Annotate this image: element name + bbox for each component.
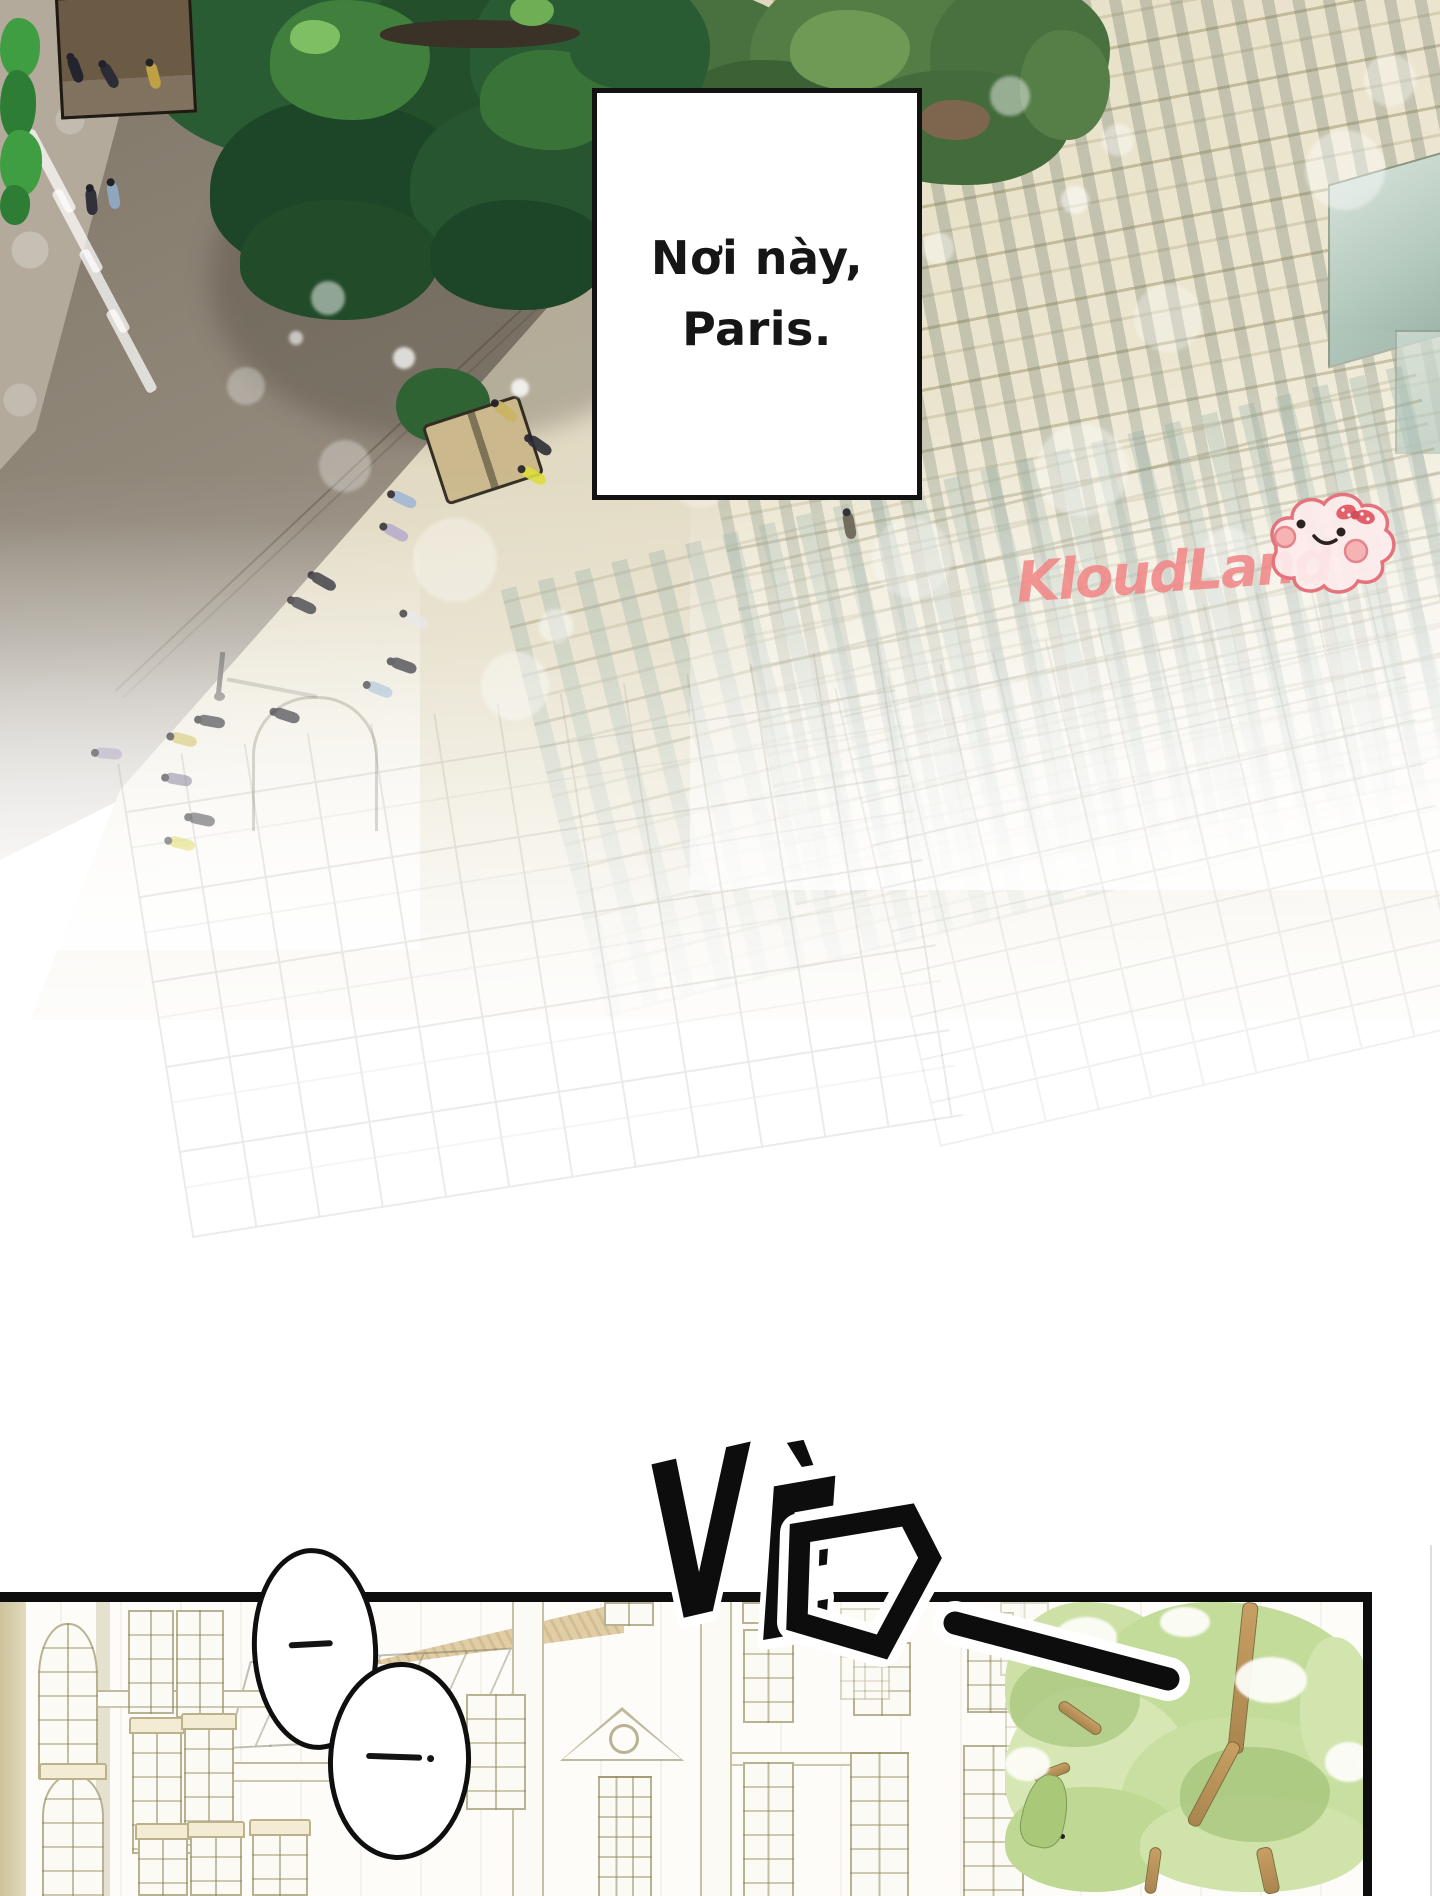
pediment-wreath bbox=[609, 1724, 639, 1754]
mascot-blush-left bbox=[1275, 527, 1295, 547]
window bbox=[138, 1834, 188, 1896]
bokeh-circle bbox=[511, 379, 529, 397]
bush bbox=[0, 18, 40, 78]
sfx-letter-v: V bbox=[647, 1398, 752, 1679]
caption-line-1: Nơi này, bbox=[651, 223, 863, 294]
bokeh-circle bbox=[393, 347, 415, 369]
bokeh-circle bbox=[872, 518, 952, 598]
bubble-dash bbox=[366, 1753, 422, 1761]
cloud-mascot-icon bbox=[1258, 486, 1400, 598]
page-edge-line bbox=[1430, 1545, 1432, 1896]
pedestrian-head bbox=[842, 508, 851, 517]
foliage-blob bbox=[570, 0, 690, 90]
bush bbox=[0, 185, 30, 225]
foliage-blob bbox=[270, 0, 430, 120]
narration-caption-box: Nơi này, Paris. bbox=[592, 88, 922, 500]
bokeh-circle bbox=[539, 609, 573, 643]
mascot-left-eye bbox=[1297, 520, 1306, 529]
aerial-paris-scene: Nơi này, Paris. KloudLand bbox=[0, 0, 1440, 1597]
bubble-dot bbox=[427, 1754, 434, 1761]
lamppost-base bbox=[214, 692, 225, 701]
comic-page: Nơi này, Paris. KloudLand bbox=[0, 0, 1440, 1896]
faded-arch-doorway bbox=[252, 696, 378, 831]
kloudland-watermark: KloudLand bbox=[1008, 484, 1428, 624]
caption-line-2: Paris. bbox=[682, 294, 832, 365]
window bbox=[598, 1776, 652, 1896]
pedestrian-head bbox=[183, 812, 192, 821]
bubble-dash bbox=[289, 1640, 333, 1648]
bokeh-circle bbox=[289, 331, 303, 345]
pedestrian-head bbox=[160, 773, 169, 782]
sfx-veo: V È bbox=[500, 1380, 1260, 1720]
foliage-blob bbox=[1020, 30, 1110, 140]
window bbox=[128, 1610, 174, 1714]
mascot-right-eye bbox=[1337, 528, 1346, 537]
bokeh-circle bbox=[227, 367, 265, 405]
pedestrian-head bbox=[193, 715, 202, 724]
foliage-gap bbox=[1325, 1742, 1372, 1782]
window bbox=[850, 1752, 909, 1896]
facade-shade bbox=[0, 1602, 26, 1896]
bokeh-circle bbox=[990, 76, 1030, 116]
foliage-blob bbox=[380, 20, 580, 48]
window bbox=[743, 1762, 794, 1896]
foliage-blob bbox=[790, 10, 910, 90]
bokeh-circle bbox=[1102, 124, 1134, 156]
bokeh-circle bbox=[413, 518, 497, 602]
window bbox=[190, 1832, 242, 1896]
pedestrian-head bbox=[85, 184, 94, 193]
bokeh-circle bbox=[1364, 54, 1416, 106]
bokeh-circle bbox=[319, 440, 371, 492]
bokeh-circle bbox=[1305, 130, 1385, 210]
pedestrian-head bbox=[106, 178, 115, 187]
mascot-blush-right bbox=[1345, 540, 1367, 562]
foliage-blob bbox=[430, 200, 610, 310]
bokeh-circle bbox=[1134, 284, 1202, 352]
window bbox=[176, 1610, 224, 1718]
window bbox=[38, 1623, 98, 1779]
window bbox=[252, 1830, 308, 1896]
pedestrian-head bbox=[91, 748, 100, 757]
window bbox=[42, 1774, 104, 1896]
bokeh-circle bbox=[922, 232, 954, 264]
foliage-blob bbox=[920, 100, 990, 140]
foliage-blob bbox=[290, 20, 340, 54]
bokeh-circle bbox=[481, 652, 549, 720]
bokeh-circle bbox=[311, 281, 345, 315]
bokeh-circle bbox=[1061, 186, 1089, 214]
